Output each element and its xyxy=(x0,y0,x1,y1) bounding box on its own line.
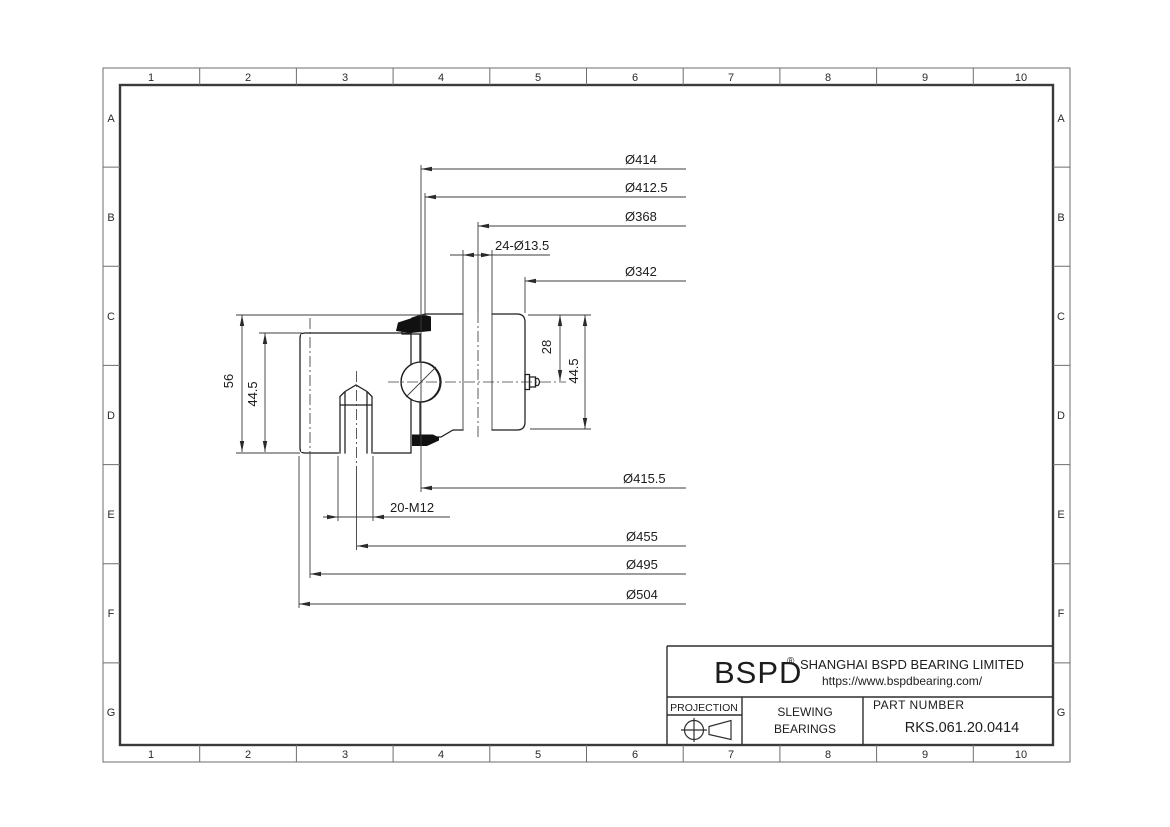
dim-outer-ring-height: 44.5 xyxy=(566,358,581,383)
grid-row-label: A xyxy=(107,113,115,125)
part-number-label: PART NUMBER xyxy=(873,698,965,712)
grid-col-label: 3 xyxy=(342,72,348,84)
dim-bolt-circle-inner: Ø455 xyxy=(626,529,658,544)
company-name: SHANGHAI BSPD BEARING LIMITED xyxy=(800,657,1024,672)
grid-col-label: 4 xyxy=(438,72,444,84)
tapped-hole-m12 xyxy=(339,385,373,455)
dim-outer-diameter: Ø504 xyxy=(626,587,658,602)
dim-tapped-holes: 20-M12 xyxy=(390,500,434,515)
grid-col-label: 7 xyxy=(728,72,734,84)
grid-col-label: 10 xyxy=(1015,749,1027,761)
grid-col-label: 9 xyxy=(922,749,928,761)
grid-row-label: B xyxy=(1057,212,1064,224)
grid-row-label: B xyxy=(107,212,114,224)
grid-col-label: 3 xyxy=(342,749,348,761)
dim-spigot: Ø495 xyxy=(626,557,658,572)
bearing-cross-section xyxy=(300,313,540,455)
grid-row-label: C xyxy=(1057,311,1065,323)
grid-col-label: 5 xyxy=(535,72,541,84)
product-type-line2: BEARINGS xyxy=(774,722,836,736)
grid-col-label: 6 xyxy=(632,749,638,761)
dim-bolt-circle-outer: Ø368 xyxy=(625,209,657,224)
grid-row-label: E xyxy=(1057,509,1064,521)
grid-col-label: 8 xyxy=(825,749,831,761)
dimension-texts: Ø414 Ø412.5 Ø368 24-Ø13.5 Ø342 Ø415.5 20… xyxy=(221,152,668,602)
grid-col-label: 1 xyxy=(148,749,154,761)
dim-bolt-holes: 24-Ø13.5 xyxy=(495,238,549,253)
dim-inner-ring-height: 44.5 xyxy=(245,381,260,406)
drawing-sheet: 1 2 3 4 5 6 7 8 9 10 1 2 3 4 5 6 7 8 9 1… xyxy=(0,0,1170,827)
title-block: BSPD ® SHANGHAI BSPD BEARING LIMITED htt… xyxy=(667,646,1053,745)
grid-col-label: 8 xyxy=(825,72,831,84)
inner-ring-face-strip xyxy=(301,334,318,452)
grid-row-label: D xyxy=(107,410,115,422)
bolt-hole xyxy=(464,313,492,432)
grid-row-label: F xyxy=(108,608,115,620)
grid-row-label: A xyxy=(1057,113,1065,125)
bottom-seal xyxy=(412,435,439,447)
dim-outer-raceway: Ø414 xyxy=(625,152,657,167)
dim-total-height: 56 xyxy=(221,374,236,388)
outer-ring-section xyxy=(402,314,525,437)
dim-nipple-offset: 28 xyxy=(539,340,554,354)
dim-raceway-minor: Ø412.5 xyxy=(625,180,668,195)
grid-col-label: 6 xyxy=(632,72,638,84)
grid-row-label: C xyxy=(107,311,115,323)
grid-row-label: G xyxy=(1057,707,1066,719)
extension-lines xyxy=(236,165,591,608)
grid-col-label: 10 xyxy=(1015,72,1027,84)
grid-col-label: 5 xyxy=(535,749,541,761)
part-number-value: RKS.061.20.0414 xyxy=(905,720,1019,736)
grid-row-label: G xyxy=(107,707,116,719)
grid-col-label: 2 xyxy=(245,72,251,84)
dim-bore: Ø342 xyxy=(625,264,657,279)
grid-row-label: D xyxy=(1057,410,1065,422)
grid-col-label: 2 xyxy=(245,749,251,761)
grid-row-label: F xyxy=(1058,608,1065,620)
engineering-drawing: 1 2 3 4 5 6 7 8 9 10 1 2 3 4 5 6 7 8 9 1… xyxy=(0,0,1170,827)
projection-label: PROJECTION xyxy=(670,702,738,714)
grid-col-label: 7 xyxy=(728,749,734,761)
first-angle-projection-icon xyxy=(681,718,731,742)
dim-raceway-lower: Ø415.5 xyxy=(623,471,666,486)
company-website: https://www.bspdbearing.com/ xyxy=(822,674,983,688)
grid-col-label: 1 xyxy=(148,72,154,84)
grid-col-label: 9 xyxy=(922,72,928,84)
product-type-line1: SLEWING xyxy=(777,705,832,719)
grid-row-label: E xyxy=(107,509,114,521)
registered-mark: ® xyxy=(787,656,795,667)
grid-col-label: 4 xyxy=(438,749,444,761)
